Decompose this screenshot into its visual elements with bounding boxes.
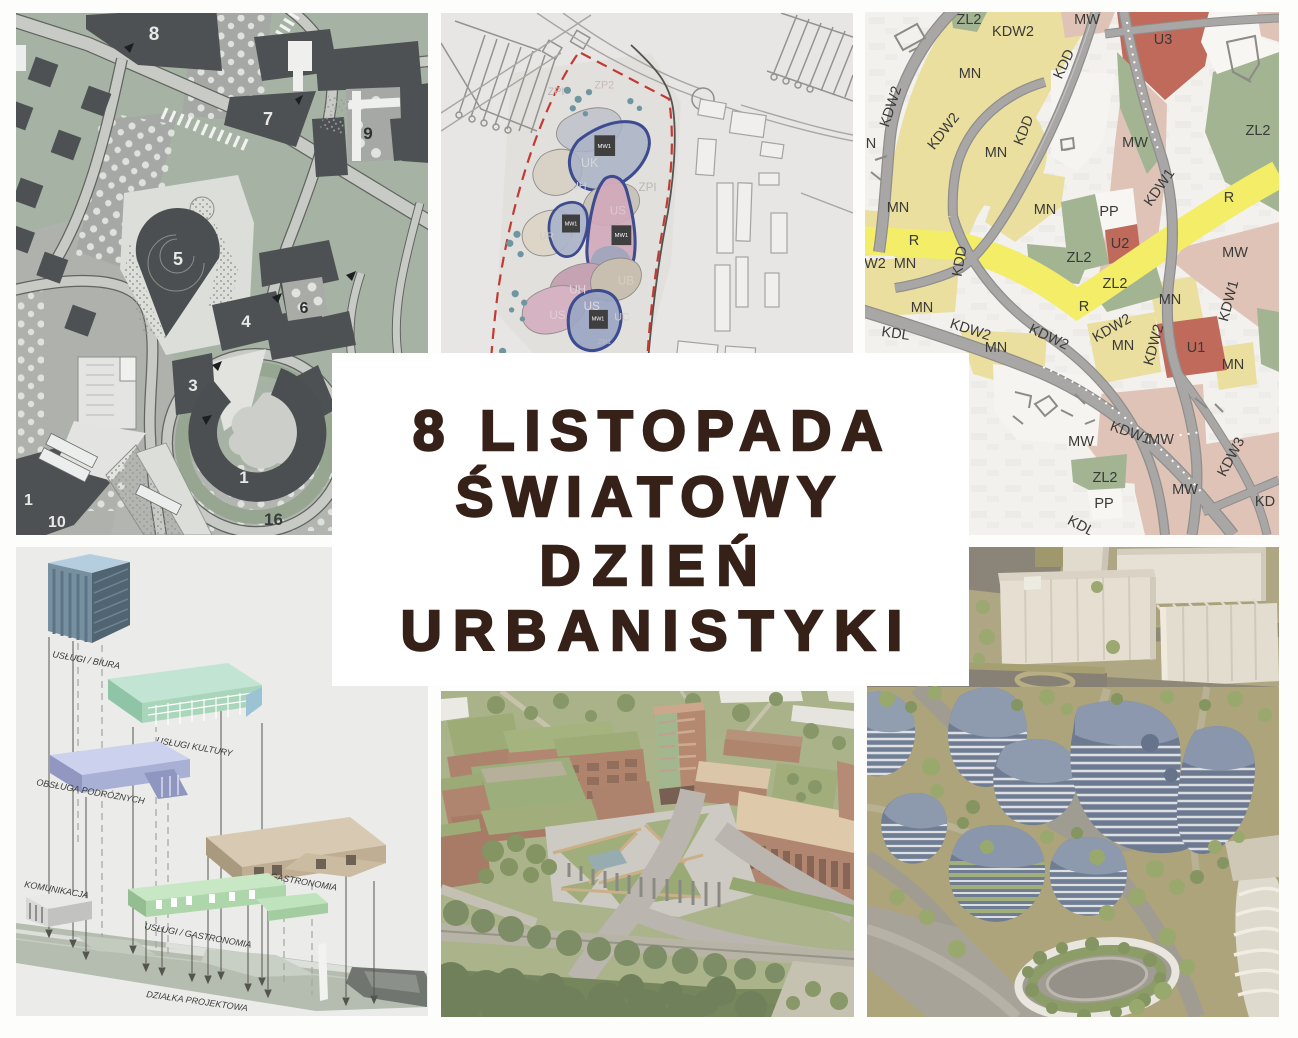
svg-text:U3: U3 — [1154, 32, 1173, 48]
svg-text:MN: MN — [894, 256, 917, 272]
svg-text:MN: MN — [1034, 202, 1057, 218]
svg-text:ZP2: ZP2 — [594, 80, 614, 92]
svg-text:MW: MW — [1068, 434, 1094, 450]
svg-text:1: 1 — [24, 492, 33, 509]
svg-text:MW1: MW1 — [565, 221, 578, 227]
svg-text:MN: MN — [985, 145, 1008, 161]
svg-text:ZP1: ZP1 — [567, 236, 580, 245]
svg-text:U1: U1 — [1187, 340, 1206, 356]
svg-text:USŁUGI / BIURA: USŁUGI / BIURA — [52, 649, 121, 671]
svg-text:MN: MN — [1222, 357, 1245, 373]
svg-text:U2: U2 — [1111, 236, 1130, 252]
svg-text:US: US — [610, 204, 626, 217]
svg-text:DZIEŃ: DZIEŃ — [540, 534, 770, 598]
svg-text:MN: MN — [911, 300, 934, 316]
svg-text:8: 8 — [149, 24, 160, 45]
svg-text:8 LISTOPADA: 8 LISTOPADA — [413, 399, 892, 463]
svg-text:W2: W2 — [865, 256, 886, 272]
svg-text:16: 16 — [264, 510, 283, 529]
svg-text:ZL2: ZL2 — [957, 12, 982, 28]
svg-text:ZL2: ZL2 — [1093, 470, 1118, 486]
svg-text:UK: UK — [581, 156, 599, 170]
svg-text:UC: UC — [614, 312, 630, 324]
svg-text:MW1: MW1 — [592, 317, 605, 323]
svg-text:KDW2: KDW2 — [992, 24, 1034, 40]
svg-text:MN: MN — [1159, 292, 1182, 308]
svg-text:ZP1: ZP1 — [598, 337, 611, 346]
svg-text:ZPI: ZPI — [639, 181, 657, 194]
svg-text:MW: MW — [1122, 135, 1148, 151]
svg-text:KD: KD — [1255, 494, 1275, 510]
svg-text:ZPI: ZPI — [548, 86, 565, 98]
svg-text:R: R — [1224, 190, 1234, 206]
svg-text:ZL2: ZL2 — [1246, 123, 1271, 139]
svg-text:PP: PP — [1094, 496, 1113, 512]
svg-text:ŚWIATOWY: ŚWIATOWY — [456, 465, 845, 529]
svg-text:7: 7 — [263, 109, 273, 129]
svg-text:MW: MW — [1172, 482, 1198, 498]
svg-text:R: R — [909, 233, 919, 249]
svg-text:UR: UR — [540, 232, 554, 243]
svg-text:ZL2: ZL2 — [1067, 250, 1092, 266]
svg-text:PP: PP — [1099, 204, 1118, 220]
svg-text:MW: MW — [1222, 245, 1248, 261]
svg-text:R: R — [1079, 299, 1089, 315]
svg-text:UB: UB — [618, 275, 634, 288]
svg-text:5: 5 — [173, 249, 183, 269]
svg-text:1: 1 — [239, 468, 248, 487]
svg-text:UH: UH — [569, 284, 586, 297]
svg-text:MW: MW — [1074, 12, 1100, 28]
svg-text:MN: MN — [1112, 338, 1135, 354]
svg-text:URBANISTYKI: URBANISTYKI — [401, 599, 914, 663]
svg-text:ZL2: ZL2 — [1103, 276, 1128, 292]
svg-text:4: 4 — [241, 312, 251, 331]
svg-text:6: 6 — [300, 300, 309, 317]
svg-text:3: 3 — [188, 376, 197, 395]
svg-text:MW1: MW1 — [597, 144, 611, 150]
svg-text:10: 10 — [48, 514, 66, 531]
svg-text:US: US — [584, 300, 600, 313]
svg-text:UH: UH — [571, 180, 587, 192]
svg-text:9: 9 — [363, 124, 372, 143]
svg-text:MN: MN — [959, 66, 982, 82]
svg-text:N: N — [866, 136, 876, 152]
svg-text:MN: MN — [887, 200, 910, 216]
svg-text:MW1: MW1 — [615, 233, 629, 239]
svg-text:US: US — [549, 309, 565, 322]
